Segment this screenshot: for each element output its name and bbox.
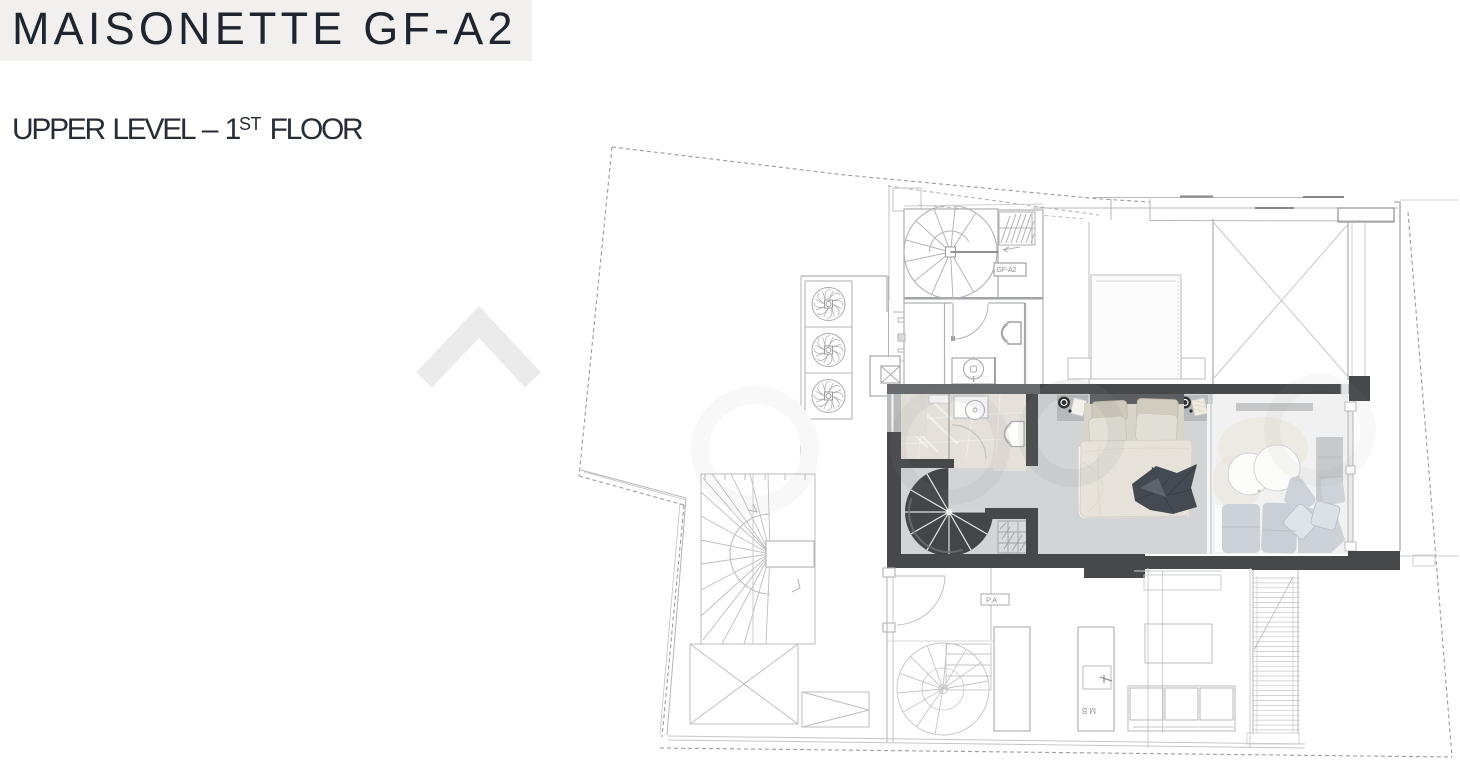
svg-text:UPPER LEVEL – 1ST FLOOR: UPPER LEVEL – 1ST FLOOR (12, 113, 363, 146)
svg-text:M.B: M.B (1082, 706, 1096, 715)
svg-text:P.A: P.A (986, 596, 997, 605)
svg-text:MAISONETTE GF-A2: MAISONETTE GF-A2 (12, 3, 517, 54)
svg-text:GF-A2: GF-A2 (997, 267, 1017, 274)
